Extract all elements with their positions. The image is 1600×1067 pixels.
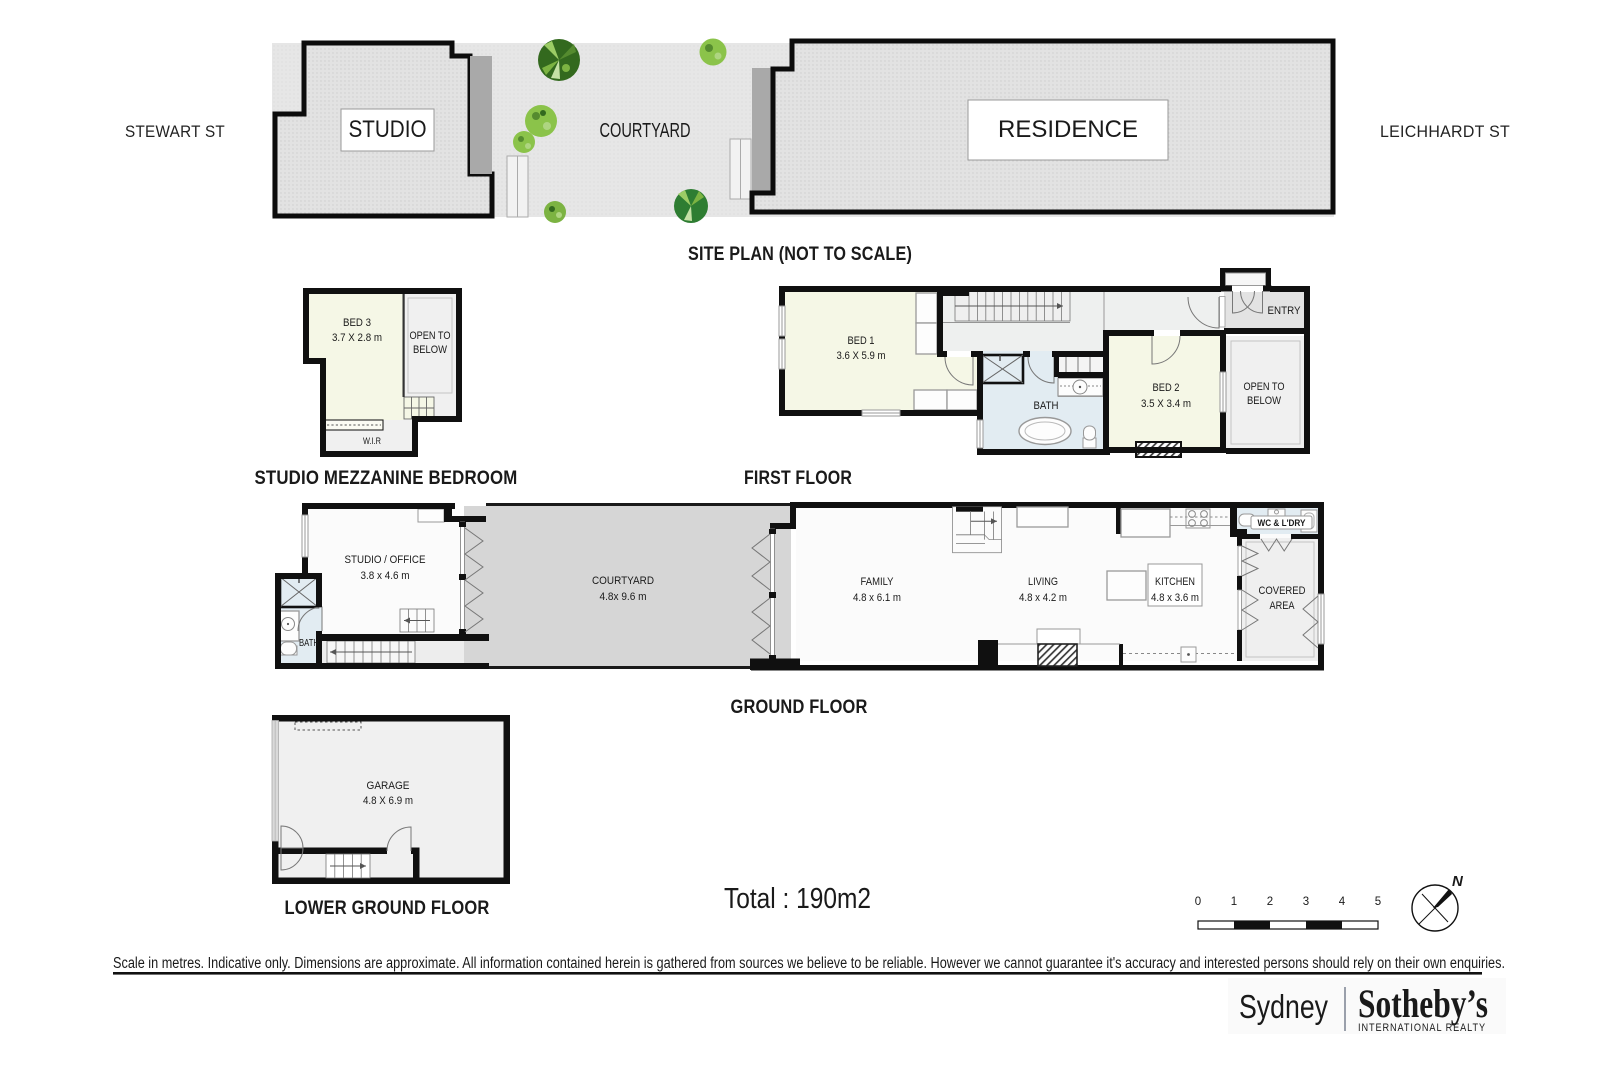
svg-text:WC & L'DRY: WC & L'DRY bbox=[1258, 518, 1307, 529]
svg-text:STUDIO: STUDIO bbox=[349, 116, 427, 143]
svg-text:LIVING: LIVING bbox=[1028, 576, 1058, 588]
svg-text:COVERED: COVERED bbox=[1259, 585, 1306, 597]
svg-text:3.8 x 4.6 m: 3.8 x 4.6 m bbox=[361, 570, 410, 582]
svg-text:3.5 X 3.4 m: 3.5 X 3.4 m bbox=[1141, 398, 1191, 410]
svg-text:N: N bbox=[1452, 873, 1464, 890]
svg-text:5: 5 bbox=[1375, 896, 1381, 908]
svg-text:BELOW: BELOW bbox=[1247, 395, 1282, 407]
svg-text:COURTYARD: COURTYARD bbox=[600, 120, 691, 142]
svg-text:RESIDENCE: RESIDENCE bbox=[998, 116, 1138, 143]
svg-text:GROUND FLOOR: GROUND FLOOR bbox=[731, 696, 868, 718]
svg-text:4.8 x 4.2 m: 4.8 x 4.2 m bbox=[1019, 592, 1067, 604]
svg-text:3: 3 bbox=[1303, 896, 1309, 908]
svg-text:ENTRY: ENTRY bbox=[1268, 305, 1302, 317]
svg-text:Sydney: Sydney bbox=[1239, 988, 1328, 1025]
svg-text:4.8 x 3.6 m: 4.8 x 3.6 m bbox=[1151, 592, 1199, 604]
svg-text:BATH: BATH bbox=[299, 638, 319, 649]
svg-text:2: 2 bbox=[1267, 896, 1273, 908]
svg-text:W.I.R: W.I.R bbox=[363, 436, 381, 447]
svg-text:4.8x 9.6 m: 4.8x 9.6 m bbox=[600, 591, 647, 603]
svg-text:BATH: BATH bbox=[1034, 400, 1059, 412]
svg-text:KITCHEN: KITCHEN bbox=[1155, 576, 1195, 588]
svg-text:BELOW: BELOW bbox=[413, 344, 448, 356]
svg-text:STUDIO MEZZANINE BEDROOM: STUDIO MEZZANINE BEDROOM bbox=[255, 467, 518, 489]
svg-text:OPEN TO: OPEN TO bbox=[410, 330, 451, 342]
svg-text:GARAGE: GARAGE bbox=[367, 780, 410, 792]
svg-text:4.8 x 6.1 m: 4.8 x 6.1 m bbox=[853, 592, 901, 604]
svg-text:FIRST FLOOR: FIRST FLOOR bbox=[744, 467, 852, 489]
svg-text:Total : 190m2: Total : 190m2 bbox=[724, 883, 871, 915]
svg-text:BED 2: BED 2 bbox=[1153, 382, 1180, 394]
svg-text:FAMILY: FAMILY bbox=[861, 576, 895, 588]
svg-text:3.6 X 5.9 m: 3.6 X 5.9 m bbox=[837, 350, 886, 362]
svg-text:COURTYARD: COURTYARD bbox=[592, 575, 654, 587]
svg-text:STEWART ST: STEWART ST bbox=[125, 122, 225, 141]
svg-text:1: 1 bbox=[1231, 896, 1237, 908]
svg-text:4: 4 bbox=[1339, 896, 1346, 908]
svg-text:STUDIO / OFFICE: STUDIO / OFFICE bbox=[345, 554, 426, 566]
svg-text:LEICHHARDT ST: LEICHHARDT ST bbox=[1380, 122, 1510, 141]
svg-text:3.7 X 2.8 m: 3.7 X 2.8 m bbox=[332, 332, 382, 344]
svg-text:BED 3: BED 3 bbox=[343, 317, 371, 329]
svg-text:Scale in metres. Indicative on: Scale in metres. Indicative only. Dimens… bbox=[113, 955, 1505, 972]
svg-text:4.8 X 6.9 m: 4.8 X 6.9 m bbox=[363, 795, 413, 807]
svg-text:SITE PLAN (NOT TO SCALE): SITE PLAN (NOT TO SCALE) bbox=[688, 243, 912, 265]
svg-text:OPEN TO: OPEN TO bbox=[1244, 381, 1285, 393]
svg-text:AREA: AREA bbox=[1270, 600, 1296, 612]
svg-text:0: 0 bbox=[1195, 896, 1201, 908]
svg-text:INTERNATIONAL REALTY: INTERNATIONAL REALTY bbox=[1358, 1022, 1486, 1034]
svg-text:BED 1: BED 1 bbox=[848, 335, 875, 347]
svg-text:LOWER GROUND FLOOR: LOWER GROUND FLOOR bbox=[285, 897, 490, 919]
svg-text:Sotheby’s: Sotheby’s bbox=[1358, 981, 1488, 1026]
